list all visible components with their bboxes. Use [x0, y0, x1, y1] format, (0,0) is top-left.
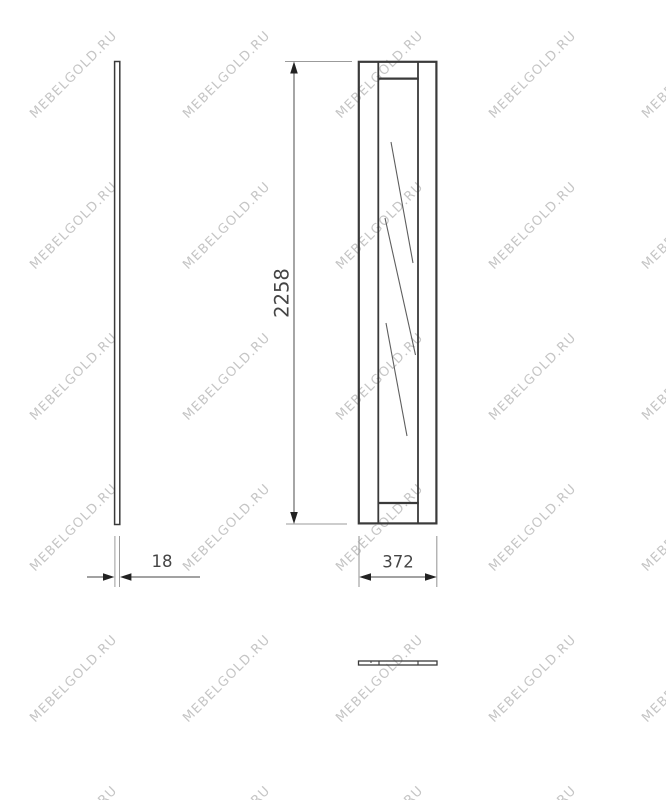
front-outline [359, 62, 437, 524]
dimension-depth-label: 18 [152, 552, 173, 571]
drawing-canvas: MEBELGOLD.RUMEBELGOLD.RUMEBELGOLD.RUMEBE… [0, 0, 666, 800]
technical-drawing: 2258 372 18 [0, 0, 666, 800]
dimension-width: 372 [359, 536, 437, 587]
top-view-outline [359, 661, 438, 665]
arrowhead-left-icon [120, 573, 131, 580]
mirror-reflection-marks [385, 142, 416, 436]
top-view [359, 661, 438, 665]
reflection-line [385, 218, 416, 355]
dimension-width-label: 372 [382, 553, 414, 572]
arrowhead-right-icon [425, 573, 437, 580]
dimension-depth: 18 [87, 536, 200, 587]
dimension-height: 2258 [271, 62, 353, 525]
arrowhead-left-icon [359, 573, 371, 580]
arrowhead-down-icon [290, 512, 298, 524]
arrowhead-right-icon [103, 573, 114, 580]
side-view [115, 62, 120, 525]
side-panel-outline [115, 62, 120, 525]
arrowhead-up-icon [290, 62, 298, 74]
reflection-line [391, 142, 413, 263]
dimension-height-label: 2258 [271, 268, 294, 318]
front-view [359, 62, 437, 524]
reflection-line [386, 323, 407, 436]
